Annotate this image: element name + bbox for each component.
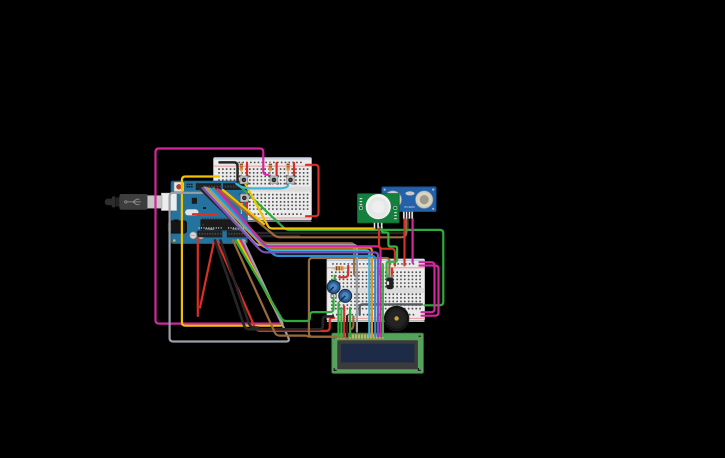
svg-text:HC-SR04: HC-SR04	[404, 206, 415, 209]
